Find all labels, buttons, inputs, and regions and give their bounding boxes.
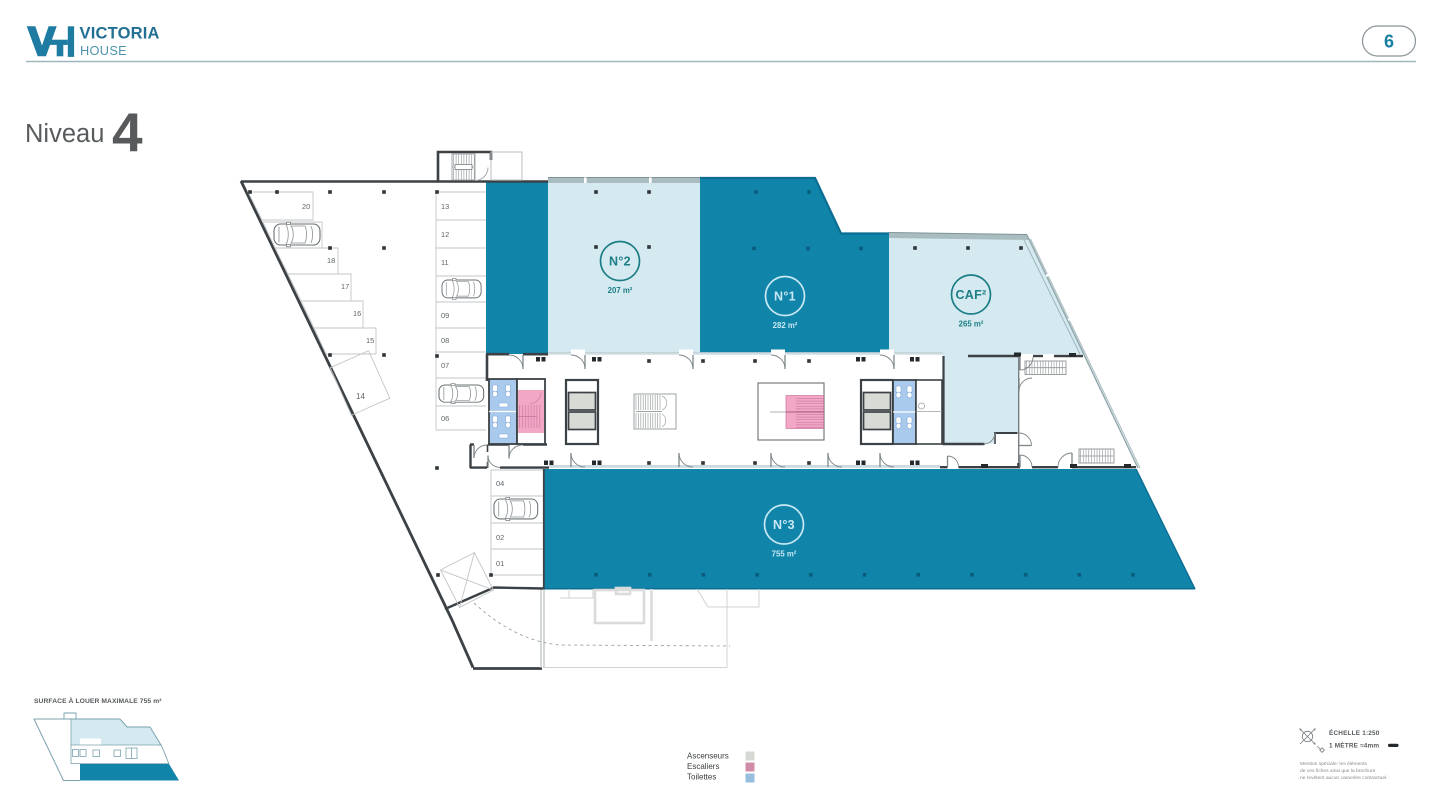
svg-text:Escaliers: Escaliers xyxy=(687,762,719,771)
svg-text:SURFACE À LOUER MAXIMALE 755 m: SURFACE À LOUER MAXIMALE 755 m² xyxy=(34,696,162,705)
svg-text:ÉCHELLE 1:250: ÉCHELLE 1:250 xyxy=(1329,728,1380,737)
svg-text:Niveau: Niveau xyxy=(25,120,104,148)
svg-text:11: 11 xyxy=(441,258,449,267)
svg-text:HOUSE: HOUSE xyxy=(80,43,127,58)
svg-text:755 m²: 755 m² xyxy=(772,550,797,559)
svg-text:17: 17 xyxy=(341,282,349,291)
svg-text:02: 02 xyxy=(496,533,504,542)
svg-text:18: 18 xyxy=(327,256,335,265)
svg-text:06: 06 xyxy=(441,414,449,423)
svg-text:08: 08 xyxy=(441,336,449,345)
svg-text:04: 04 xyxy=(496,479,504,488)
svg-text:07: 07 xyxy=(441,361,449,370)
svg-text:CAF²: CAF² xyxy=(955,288,986,302)
svg-text:N°1: N°1 xyxy=(774,290,796,304)
svg-text:12: 12 xyxy=(441,230,449,239)
svg-text:09: 09 xyxy=(441,311,449,320)
svg-text:01: 01 xyxy=(496,559,504,568)
svg-text:VICTORIA: VICTORIA xyxy=(80,25,160,43)
svg-text:207 m²: 207 m² xyxy=(608,286,633,295)
svg-text:N°3: N°3 xyxy=(773,518,795,532)
svg-text:de ces fiches ainsi que la bro: de ces fiches ainsi que la brochure xyxy=(1300,768,1376,774)
svg-text:16: 16 xyxy=(353,309,361,318)
svg-text:14: 14 xyxy=(356,392,365,401)
svg-text:ne revêtent aucun caractère co: ne revêtent aucun caractère contractuel. xyxy=(1300,775,1388,781)
svg-text:4: 4 xyxy=(112,101,143,163)
svg-text:6: 6 xyxy=(1384,32,1394,52)
svg-text:15: 15 xyxy=(366,336,374,345)
svg-text:Ascenseurs: Ascenseurs xyxy=(687,752,729,761)
svg-text:282 m²: 282 m² xyxy=(773,321,798,330)
svg-text:N°2: N°2 xyxy=(609,255,631,269)
svg-text:13: 13 xyxy=(441,202,449,211)
svg-text:Mention spéciale: les éléments: Mention spéciale: les éléments xyxy=(1300,761,1367,767)
svg-text:265 m²: 265 m² xyxy=(959,320,984,329)
svg-text:Toilettes: Toilettes xyxy=(687,773,716,782)
svg-text:1 MÈTRE ≈4mm: 1 MÈTRE ≈4mm xyxy=(1329,741,1379,750)
svg-text:20: 20 xyxy=(302,202,310,211)
